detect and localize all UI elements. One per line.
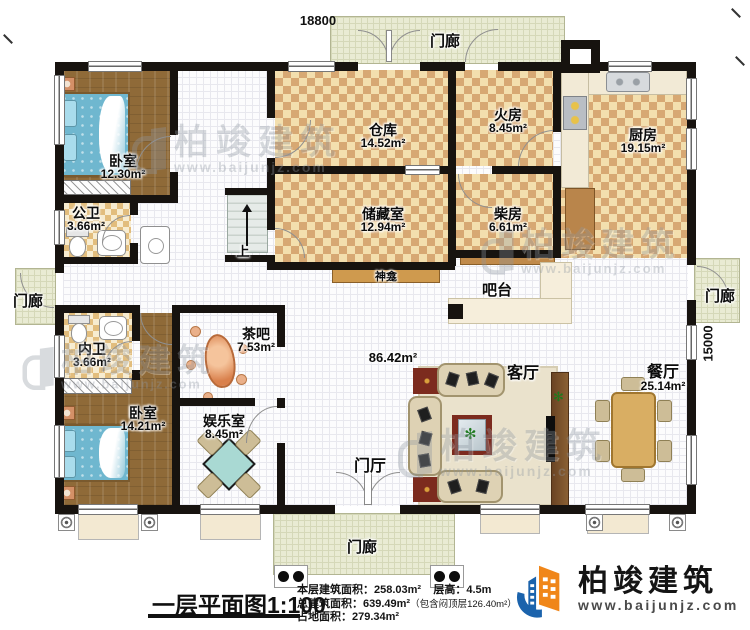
- wall: [138, 505, 200, 514]
- dimension-top: 18800: [288, 13, 348, 28]
- room-area: 12.94m²: [343, 221, 423, 234]
- room-area: 14.52m²: [348, 137, 418, 150]
- room-label-fire-room: 火房 8.45m²: [473, 108, 543, 135]
- wall: [172, 305, 285, 313]
- floor-plan: ✻ ✻: [0, 0, 750, 630]
- wall: [267, 62, 275, 118]
- wardrobe: [57, 378, 132, 394]
- room-area: 8.45m²: [473, 122, 543, 135]
- sofa-left: [408, 396, 442, 476]
- wall: [55, 62, 64, 75]
- room-label-storage: 储藏室 12.94m²: [343, 207, 423, 234]
- chair: [595, 400, 610, 422]
- room-name: 厨房: [608, 128, 678, 142]
- room-name: 柴房: [473, 207, 543, 221]
- wall: [448, 62, 456, 266]
- tea-bar-stool: [236, 374, 247, 385]
- wall: [553, 166, 561, 258]
- sofa-bottom: [437, 470, 503, 503]
- wall: [650, 505, 695, 514]
- wall: [335, 62, 358, 71]
- column-marker: [586, 514, 603, 531]
- window: [686, 128, 697, 170]
- room-area: 7.53m²: [221, 341, 291, 354]
- toilet-bowl: [69, 236, 86, 257]
- porch-top-label: 门廊: [415, 30, 475, 51]
- blanket: [99, 428, 125, 478]
- plant: ✻: [464, 427, 477, 442]
- window: [78, 504, 138, 515]
- room-label-game-room: 娱乐室 8.45m²: [184, 414, 264, 441]
- bar-label: 吧台: [467, 279, 527, 300]
- sink: [99, 316, 127, 340]
- chair: [595, 440, 610, 462]
- window: [54, 425, 65, 478]
- porch-bottom-label: 门廊: [332, 536, 392, 557]
- door-leaf: [386, 30, 392, 62]
- chair: [657, 440, 672, 462]
- door-leaf: [364, 471, 372, 505]
- room-area: 14.21m²: [108, 420, 178, 433]
- stove: [563, 96, 587, 130]
- room-label-tea-bar: 茶吧 7.53m²: [221, 327, 291, 354]
- plan-statistics: 本层建筑面积：258.03m² 层高：4.5m 总建筑面积：639.49m²（包…: [297, 584, 517, 625]
- room-label-private-bath: 内卫 3.66m²: [57, 342, 127, 369]
- room-label-kitchen: 厨房 19.15m²: [608, 128, 678, 155]
- window: [88, 61, 142, 72]
- wall: [55, 257, 138, 264]
- window: [288, 61, 335, 72]
- tv: [546, 416, 555, 462]
- total-area-stat: 总建筑面积：639.49m²: [297, 598, 410, 610]
- washing-machine: [140, 226, 170, 264]
- chimney: [561, 40, 600, 73]
- window: [686, 325, 697, 360]
- column-dot: [293, 571, 304, 582]
- porch-left-label: 门廊: [4, 290, 52, 311]
- room-name: 娱乐室: [184, 414, 264, 428]
- room-name: 茶吧: [221, 327, 291, 341]
- room-label-bedroom-2: 卧室 14.21m²: [108, 406, 178, 433]
- pillow: [63, 134, 77, 161]
- wall: [277, 443, 285, 510]
- room-label-dining: 餐厅 25.14m²: [620, 366, 706, 393]
- wall: [492, 166, 560, 174]
- wall: [260, 505, 335, 514]
- wall: [55, 505, 78, 514]
- room-name: 储藏室: [343, 207, 423, 221]
- watermark-logo-icon: [22, 347, 53, 389]
- room-name: 火房: [473, 108, 543, 122]
- cushion: [419, 431, 433, 446]
- chair: [621, 468, 645, 482]
- floor-height-stat: 层高：4.5m: [433, 584, 491, 596]
- stair-direction-arrow: [246, 206, 248, 246]
- column-dot: [449, 571, 460, 582]
- kitchen-sink: [606, 72, 650, 92]
- room-area: 12.30m²: [88, 168, 158, 181]
- cushion: [466, 371, 479, 386]
- plan-title-underline: [148, 614, 300, 618]
- pillow: [63, 100, 77, 127]
- wall: [267, 158, 275, 230]
- room-name: 卧室: [88, 154, 158, 168]
- wall: [55, 305, 140, 313]
- wall: [400, 505, 480, 514]
- chair: [657, 400, 672, 422]
- column-dot: [434, 571, 445, 582]
- stairs-up-label: 上: [228, 241, 258, 260]
- room-area: 25.14m²: [620, 380, 706, 393]
- kitchen-cabinet: [565, 188, 595, 250]
- foyer-label: 门厅: [340, 452, 400, 476]
- wall: [687, 120, 696, 128]
- cushion: [418, 453, 431, 468]
- wall: [687, 170, 696, 265]
- window: [405, 165, 440, 175]
- room-area: 19.15m²: [608, 142, 678, 155]
- room-label-warehouse: 仓库 14.52m²: [348, 123, 418, 150]
- column-marker: [58, 514, 75, 531]
- window: [686, 78, 697, 120]
- wall: [180, 398, 255, 406]
- room-name: 公卫: [60, 206, 112, 220]
- warehouse-floor: [275, 70, 448, 166]
- wardrobe: [57, 180, 131, 195]
- window-sill: [480, 514, 540, 534]
- wall: [420, 62, 465, 71]
- wall: [130, 203, 138, 215]
- window: [686, 435, 697, 485]
- wall: [448, 250, 560, 258]
- dining-table: [611, 392, 656, 468]
- dimension-right: 15000: [701, 304, 716, 384]
- room-area: 3.66m²: [60, 220, 112, 233]
- toilet-bowl: [71, 323, 87, 343]
- living-room-label: 客厅: [493, 359, 553, 383]
- window: [200, 504, 260, 515]
- room-name: 内卫: [57, 342, 127, 356]
- bar-column: [448, 304, 463, 319]
- sink-basin: [104, 321, 123, 336]
- room-label-firewood: 柴房 6.61m²: [473, 207, 543, 234]
- hall-area-label: 86.42m²: [353, 350, 433, 365]
- wall: [553, 62, 561, 132]
- tea-bar-stool: [190, 326, 201, 337]
- cushion: [445, 372, 459, 388]
- room-name: 仓库: [348, 123, 418, 137]
- window: [480, 504, 540, 515]
- window-sill: [200, 514, 261, 540]
- window: [608, 61, 652, 72]
- column-marker: [669, 514, 686, 531]
- plant: ✻: [553, 390, 564, 403]
- floor-area-stat: 本层建筑面积：258.03m²: [297, 584, 421, 596]
- dimension-tick: [731, 8, 741, 18]
- total-area-note: （包含闷顶层126.40m²）: [410, 599, 517, 610]
- room-area: 3.66m²: [57, 356, 127, 369]
- wall: [275, 166, 405, 174]
- wall: [687, 62, 696, 78]
- wall: [170, 62, 178, 135]
- wall: [600, 62, 608, 71]
- room-label-public-bath: 公卫 3.66m²: [60, 206, 112, 233]
- room-label-bedroom-1: 卧室 12.30m²: [88, 154, 158, 181]
- room-area: 6.61m²: [473, 221, 543, 234]
- wall: [540, 505, 585, 514]
- room-name: 卧室: [108, 406, 178, 420]
- room-name: 餐厅: [620, 366, 706, 380]
- land-area-stat: 占地面积：279.34m²: [297, 611, 399, 623]
- window-sill: [78, 514, 139, 540]
- dimension-tick: [735, 56, 745, 66]
- wall: [132, 313, 140, 341]
- shrine-label: 神龛: [332, 268, 440, 284]
- brand-logo-block: 柏竣建筑 www.baijunjz.com: [508, 560, 739, 620]
- wall: [277, 398, 285, 408]
- cushion: [417, 407, 432, 423]
- tea-bar-stool: [186, 360, 196, 370]
- cushion: [447, 479, 461, 495]
- wall: [55, 378, 64, 425]
- bar-counter-horizontal: [448, 298, 572, 324]
- dimension-tick: [3, 34, 13, 44]
- wall: [132, 370, 140, 380]
- room-area: 8.45m²: [184, 428, 264, 441]
- column-dot: [278, 571, 289, 582]
- brand-logo-icon: [508, 560, 570, 620]
- brand-website: www.baijunjz.com: [578, 597, 739, 613]
- brand-name: 柏竣建筑: [578, 567, 739, 597]
- window: [54, 75, 65, 145]
- column-marker: [141, 514, 158, 531]
- washer-drum: [148, 238, 164, 254]
- wall: [55, 195, 178, 203]
- cushion: [476, 479, 490, 494]
